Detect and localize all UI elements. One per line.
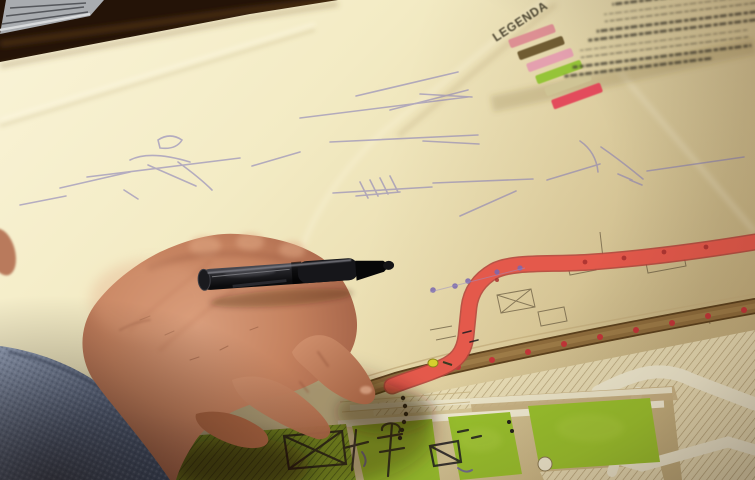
- photo-scene: LEGENDA: [0, 0, 755, 480]
- vignette-corner: [0, 0, 755, 480]
